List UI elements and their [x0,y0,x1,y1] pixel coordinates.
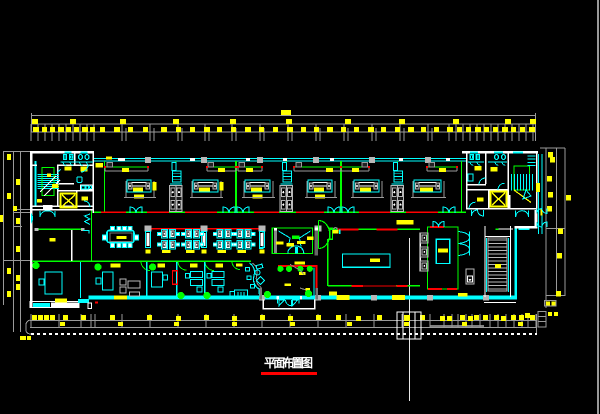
svg-text:平面布置图: 平面布置图 [264,355,313,370]
